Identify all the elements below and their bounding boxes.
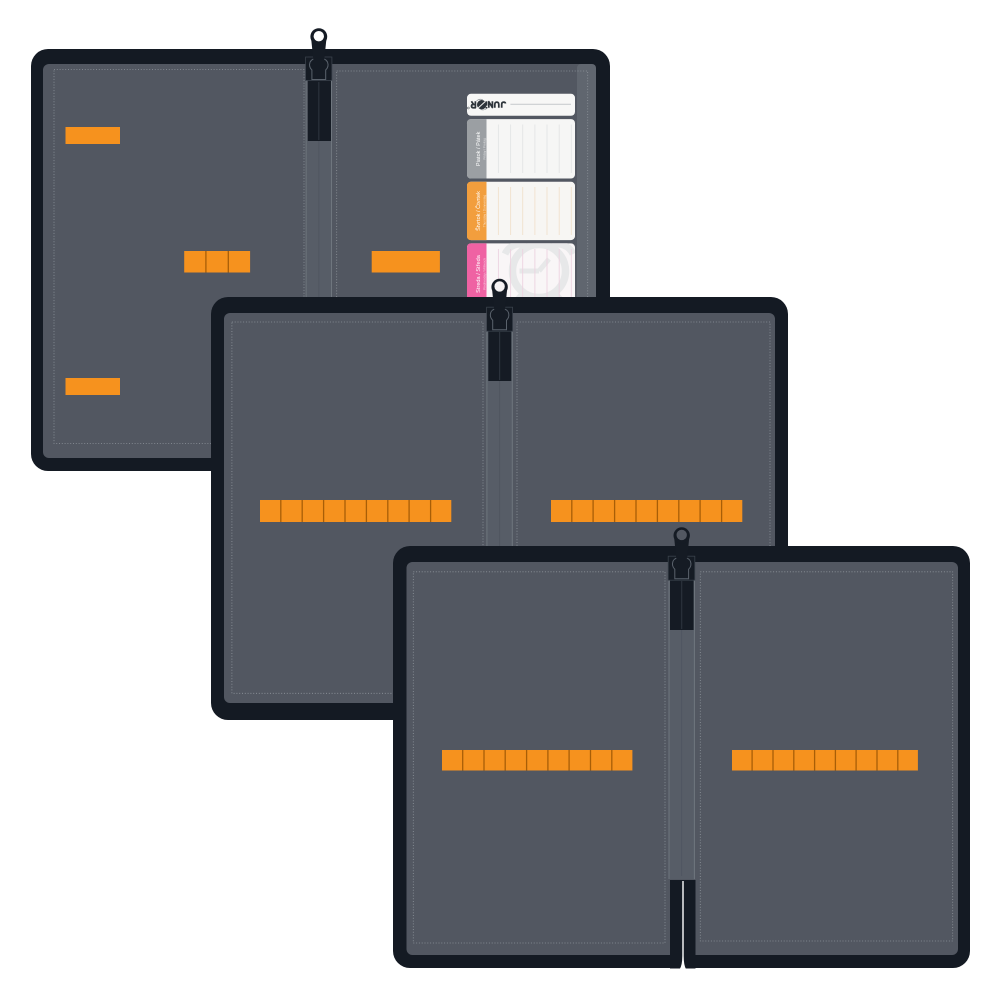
svg-text:Štvrtok / Čtvrtek: Štvrtok / Čtvrtek: [475, 191, 482, 231]
svg-text:Wednesday / Mittwoch: Wednesday / Mittwoch: [482, 258, 486, 290]
svg-text:Streda / Středa: Streda / Středa: [475, 254, 482, 293]
svg-text:Thursday / Donnerstag: Thursday / Donnerstag: [482, 195, 486, 228]
svg-text:Friday / Freitag: Friday / Freitag: [482, 138, 486, 160]
svg-text:Piatok / Pátek: Piatok / Pátek: [475, 131, 482, 166]
